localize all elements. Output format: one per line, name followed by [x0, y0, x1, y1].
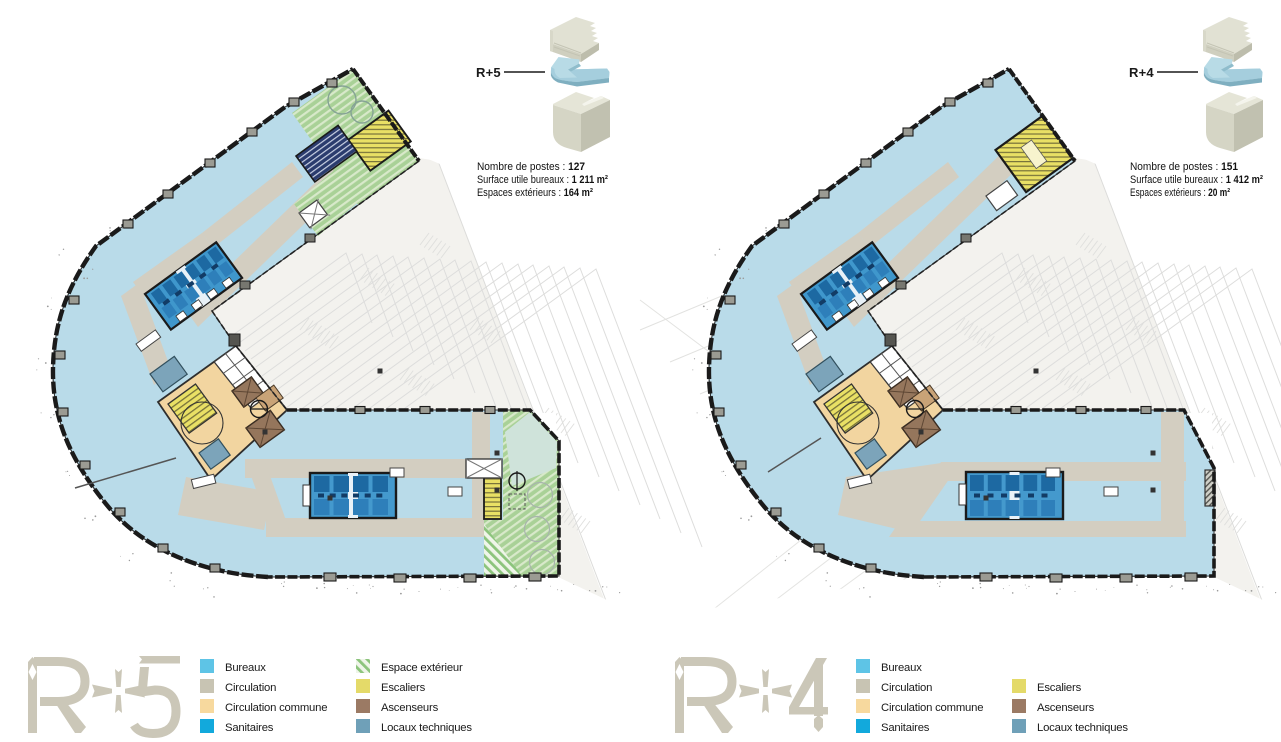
svg-text:Bureaux: Bureaux	[225, 662, 266, 674]
svg-text:Locaux techniques: Locaux techniques	[381, 722, 472, 734]
svg-text:Circulation commune: Circulation commune	[881, 702, 983, 714]
svg-text:Surface utile bureaux : 1 412: Surface utile bureaux : 1 412 m²	[1130, 174, 1263, 186]
svg-text:Nombre de postes : 151: Nombre de postes : 151	[1130, 161, 1238, 173]
svg-text:Circulation commune: Circulation commune	[225, 702, 327, 714]
svg-text:Circulation: Circulation	[881, 682, 932, 694]
svg-text:Locaux techniques: Locaux techniques	[1037, 722, 1128, 734]
svg-text:Ascenseurs: Ascenseurs	[1037, 702, 1095, 714]
svg-text:Escaliers: Escaliers	[381, 682, 426, 694]
svg-text:Espace extérieur: Espace extérieur	[381, 662, 463, 674]
svg-text:Surface utile bureaux : 1 211: Surface utile bureaux : 1 211 m²	[477, 174, 608, 186]
svg-text:Espaces extérieurs : 164 m²: Espaces extérieurs : 164 m²	[477, 187, 593, 199]
svg-text:Sanitaires: Sanitaires	[225, 722, 274, 734]
svg-text:Escaliers: Escaliers	[1037, 682, 1082, 694]
svg-text:R+4: R+4	[1129, 65, 1154, 80]
svg-text:Nombre de postes : 127: Nombre de postes : 127	[477, 161, 585, 173]
svg-text:Circulation: Circulation	[225, 682, 276, 694]
svg-text:Ascenseurs: Ascenseurs	[381, 702, 439, 714]
svg-text:Bureaux: Bureaux	[881, 662, 922, 674]
svg-text:Sanitaires: Sanitaires	[881, 722, 930, 734]
svg-text:Espaces extérieurs : 20 m²: Espaces extérieurs : 20 m²	[1130, 187, 1230, 199]
svg-text:R+5: R+5	[476, 65, 501, 80]
